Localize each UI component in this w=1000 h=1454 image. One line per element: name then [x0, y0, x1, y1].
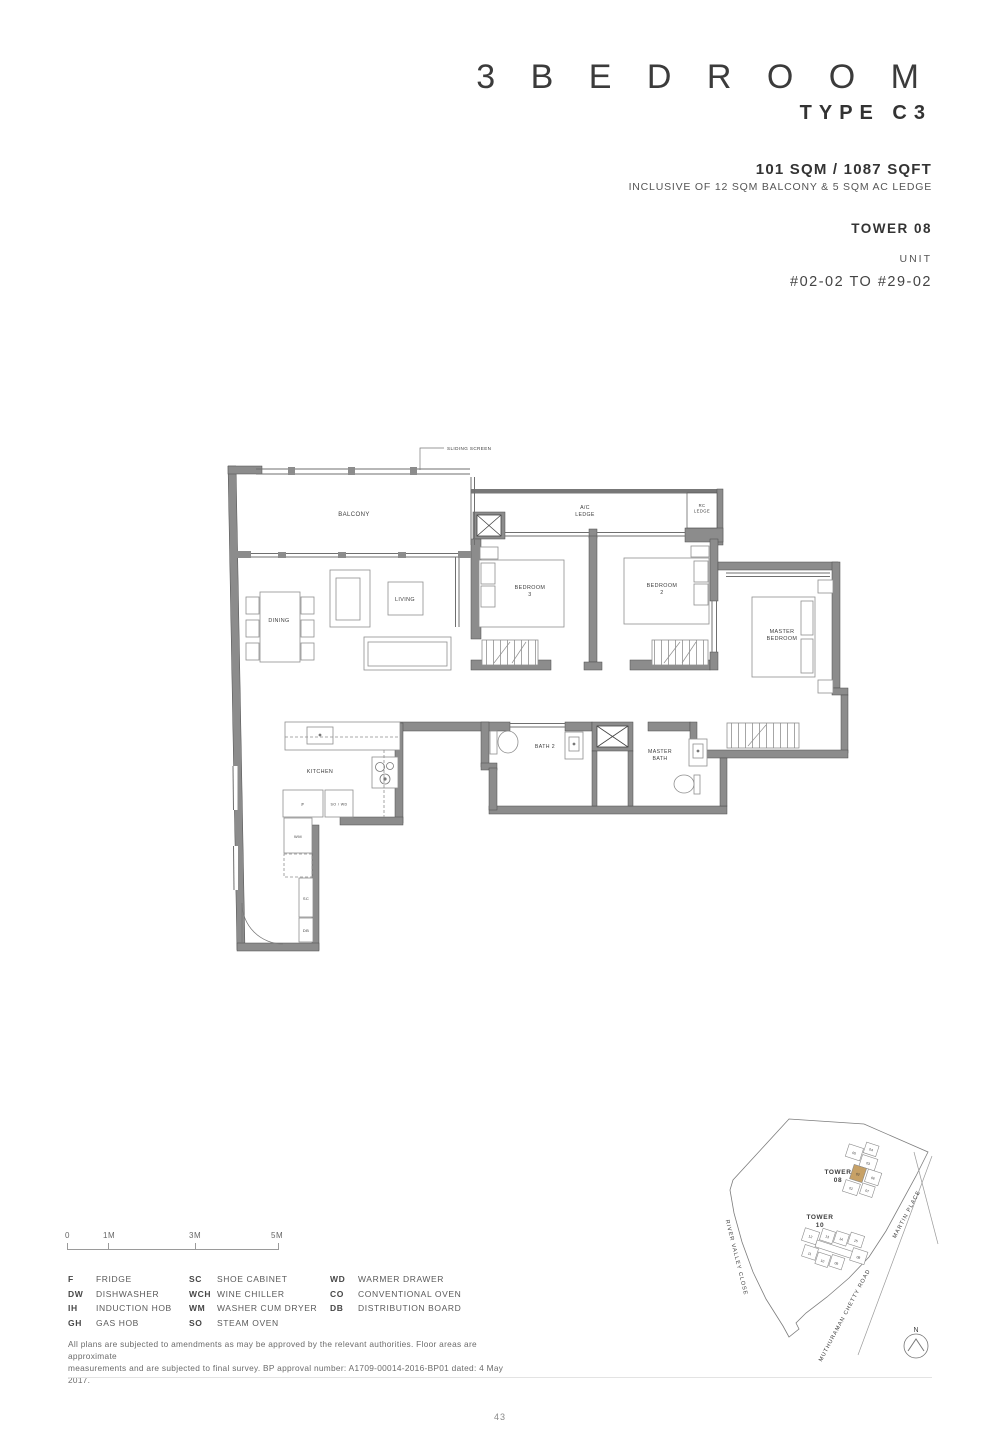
shower-icon	[597, 726, 628, 747]
legend-name: WINE CHILLER	[217, 1289, 285, 1299]
north-arrow-chevron	[908, 1339, 924, 1351]
living-label: LIVING	[395, 597, 415, 603]
entry-door	[242, 903, 283, 944]
bedroom3-label-1: BEDROOM	[515, 585, 546, 591]
scale-tick-label: 0	[65, 1231, 70, 1240]
legend-item: SOSTEAM OVEN	[189, 1316, 317, 1331]
legend-abbr: DB	[330, 1301, 358, 1316]
so-wd-label: SO / WD	[331, 803, 348, 807]
legend-name: SHOE CABINET	[217, 1274, 288, 1284]
scale-tick-label: 1M	[103, 1231, 115, 1240]
master-bath-label-2: BATH	[652, 756, 667, 762]
legend-abbr: F	[68, 1272, 96, 1287]
legend-column-1: FFRIDGE DWDISHWASHER IHINDUCTION HOB GHG…	[68, 1272, 172, 1330]
floorplan: SLIDING SCREEN BALCONY A/C LEDGE RC LEDG…	[215, 432, 875, 962]
legend-abbr: GH	[68, 1316, 96, 1331]
rc-ledge-label-1: RC	[699, 503, 706, 508]
legend-item: WCHWINE CHILLER	[189, 1287, 317, 1302]
sliding-screen-leader	[420, 448, 444, 470]
disclaimer: All plans are subjected to amendments as…	[68, 1338, 518, 1386]
brochure-page: 3 B E D R O O M TYPE C3 101 SQM / 1087 S…	[0, 0, 1000, 1454]
wardrobes	[482, 640, 799, 748]
wm-label: WM	[294, 834, 302, 839]
master-bedroom-label-2: BEDROOM	[767, 636, 798, 642]
db-label: DB	[303, 928, 309, 933]
legend-abbr: IH	[68, 1301, 96, 1316]
master-bath-label-1: MASTER	[648, 749, 672, 755]
legend-abbr: SO	[189, 1316, 217, 1331]
tower08-label-2: 08	[834, 1177, 842, 1184]
dining-label: DINING	[268, 618, 289, 624]
area-inclusive-note: INCLUSIVE OF 12 SQM BALCONY & 5 SQM AC L…	[629, 181, 932, 193]
north-arrow-circle	[904, 1334, 928, 1358]
legend-name: STEAM OVEN	[217, 1318, 279, 1328]
header: 3 B E D R O O M	[476, 58, 932, 97]
legend-item: WDWARMER DRAWER	[330, 1272, 461, 1287]
legend-abbr: WM	[189, 1301, 217, 1316]
legend-abbr: CO	[330, 1287, 358, 1302]
legend-name: WASHER CUM DRYER	[217, 1303, 317, 1313]
bedroom3-label-2: 3	[528, 592, 531, 598]
legend-name: DISHWASHER	[96, 1289, 159, 1299]
legend-column-2: SCSHOE CABINET WCHWINE CHILLER WMWASHER …	[189, 1272, 317, 1330]
scale-bar-tick	[195, 1243, 196, 1249]
bedroom2-label-1: BEDROOM	[647, 583, 678, 589]
legend-item: SCSHOE CABINET	[189, 1272, 317, 1287]
legend-abbr: WD	[330, 1272, 358, 1287]
legend-item: COCONVENTIONAL OVEN	[330, 1287, 461, 1302]
sliding-screen-label: SLIDING SCREEN	[447, 446, 491, 451]
unit-area: 101 SQM / 1087 SQFT	[756, 161, 932, 178]
legend-item: FFRIDGE	[68, 1272, 172, 1287]
page-subtitle: TYPE C3	[800, 102, 932, 125]
site-map: 04 03 05 02 06 01 07 12 13 14 15 11 10	[700, 1100, 970, 1370]
fridge-label: F	[301, 802, 304, 807]
ac-ledge-label-1: A/C	[580, 505, 590, 511]
scale-bar-line	[67, 1249, 279, 1250]
unit-label: UNIT	[900, 253, 933, 265]
bedroom2-label-2: 2	[660, 590, 663, 596]
tower10-label-1: TOWER	[806, 1214, 833, 1221]
ac-ledge-label-2: LEDGE	[575, 512, 595, 518]
legend-item: IHINDUCTION HOB	[68, 1301, 172, 1316]
page-number: 43	[0, 1412, 1000, 1422]
tower08-label-1: TOWER	[824, 1169, 851, 1176]
legend-item: WMWASHER CUM DRYER	[189, 1301, 317, 1316]
sc-label: SC	[303, 896, 309, 901]
scale-bar-tick	[108, 1243, 109, 1249]
legend-item: GHGAS HOB	[68, 1316, 172, 1331]
disclaimer-line-2: measurements and are subjected to final …	[68, 1362, 518, 1386]
north-label: N	[913, 1327, 918, 1334]
floorplan-walls	[228, 466, 848, 951]
footer-divider	[68, 1377, 932, 1378]
tower-label: TOWER 08	[851, 221, 932, 236]
legend-abbr: WCH	[189, 1287, 217, 1302]
scale-bar-tick	[67, 1243, 68, 1249]
legend-abbr: DW	[68, 1287, 96, 1302]
scale-tick-label: 3M	[189, 1231, 201, 1240]
unit-range: #02-02 TO #29-02	[790, 274, 932, 290]
legend-name: WARMER DRAWER	[358, 1274, 444, 1284]
legend-name: CONVENTIONAL OVEN	[358, 1289, 461, 1299]
legend-name: FRIDGE	[96, 1274, 132, 1284]
scale-bar-tick	[278, 1243, 279, 1249]
disclaimer-line-1: All plans are subjected to amendments as…	[68, 1338, 518, 1362]
legend-name: GAS HOB	[96, 1318, 139, 1328]
legend-item: DBDISTRIBUTION BOARD	[330, 1301, 461, 1316]
tower10-label-2: 10	[816, 1222, 824, 1229]
master-bedroom-label-1: MASTER	[770, 629, 795, 635]
legend-name: DISTRIBUTION BOARD	[358, 1303, 461, 1313]
legend-item: DWDISHWASHER	[68, 1287, 172, 1302]
rc-ledge-label-2: LEDGE	[694, 509, 710, 514]
north-arrow: N	[904, 1327, 928, 1358]
balcony-label: BALCONY	[338, 512, 369, 518]
page-title: 3 B E D R O O M	[476, 58, 932, 97]
legend-abbr: SC	[189, 1272, 217, 1287]
bath2-label: BATH 2	[535, 744, 555, 750]
ac-unit-icon	[477, 515, 501, 536]
scale-tick-label: 5M	[271, 1231, 283, 1240]
legend-name: INDUCTION HOB	[96, 1303, 172, 1313]
kitchen-label: KITCHEN	[307, 769, 333, 775]
legend-column-3: WDWARMER DRAWER COCONVENTIONAL OVEN DBDI…	[330, 1272, 461, 1316]
